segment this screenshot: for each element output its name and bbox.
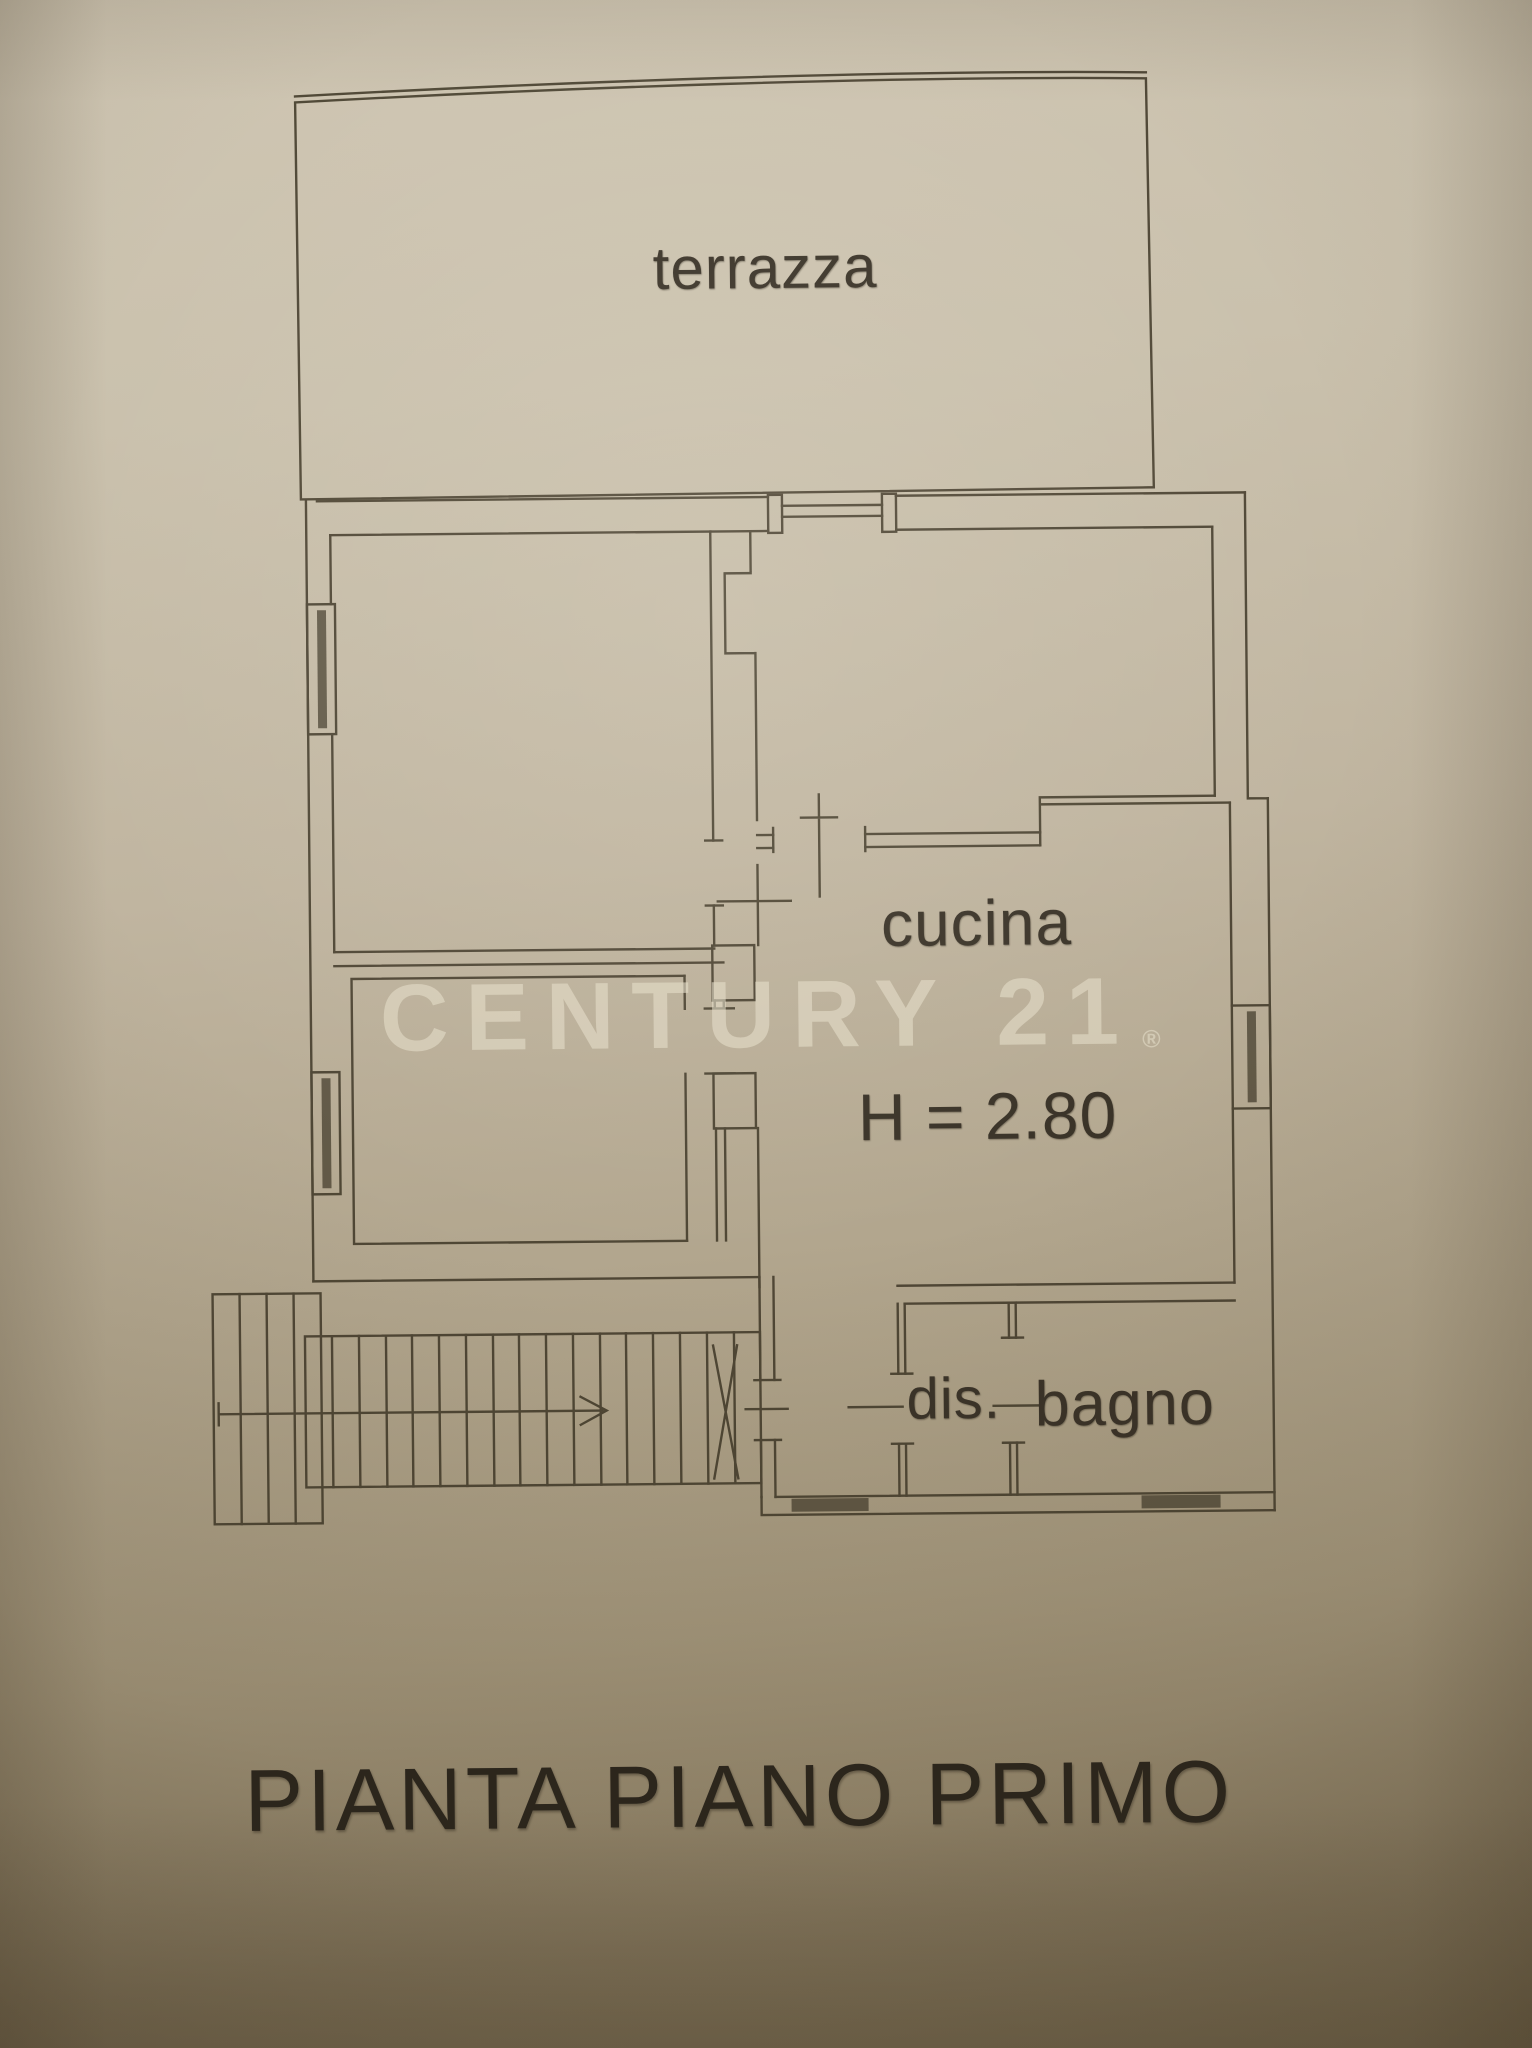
terrace-door-icon bbox=[768, 494, 896, 533]
registered-trademark-icon: ® bbox=[1142, 1025, 1161, 1053]
bathroom-label: bagno bbox=[1034, 1372, 1215, 1437]
plan-layer: terrazza cucina H = 2.80 dis. bagno CENT… bbox=[0, 0, 1532, 2048]
century21-watermark-text: CENTURY 21 bbox=[379, 958, 1136, 1071]
floor-plan-photo: terrazza cucina H = 2.80 dis. bagno CENT… bbox=[0, 0, 1532, 2048]
century21-watermark: CENTURY 21® bbox=[379, 964, 1160, 1066]
kitchen-label: cucina bbox=[881, 890, 1073, 956]
terrace-label: terrazza bbox=[652, 237, 877, 299]
window-icons bbox=[307, 595, 1272, 1194]
stair-direction-arrow-icon bbox=[218, 1345, 788, 1483]
kitchen-top-wall bbox=[757, 791, 1231, 898]
room-top-left-walls bbox=[330, 531, 791, 952]
kitchen-ceiling-height-label: H = 2.80 bbox=[858, 1082, 1118, 1150]
central-spine-walls bbox=[700, 533, 761, 1287]
stairs bbox=[213, 1289, 762, 1524]
hall-walls bbox=[753, 1277, 781, 1497]
plan-title: PIANTA PIANO PRIMO bbox=[244, 1748, 1234, 1845]
hallway-label: dis. bbox=[906, 1370, 1001, 1429]
